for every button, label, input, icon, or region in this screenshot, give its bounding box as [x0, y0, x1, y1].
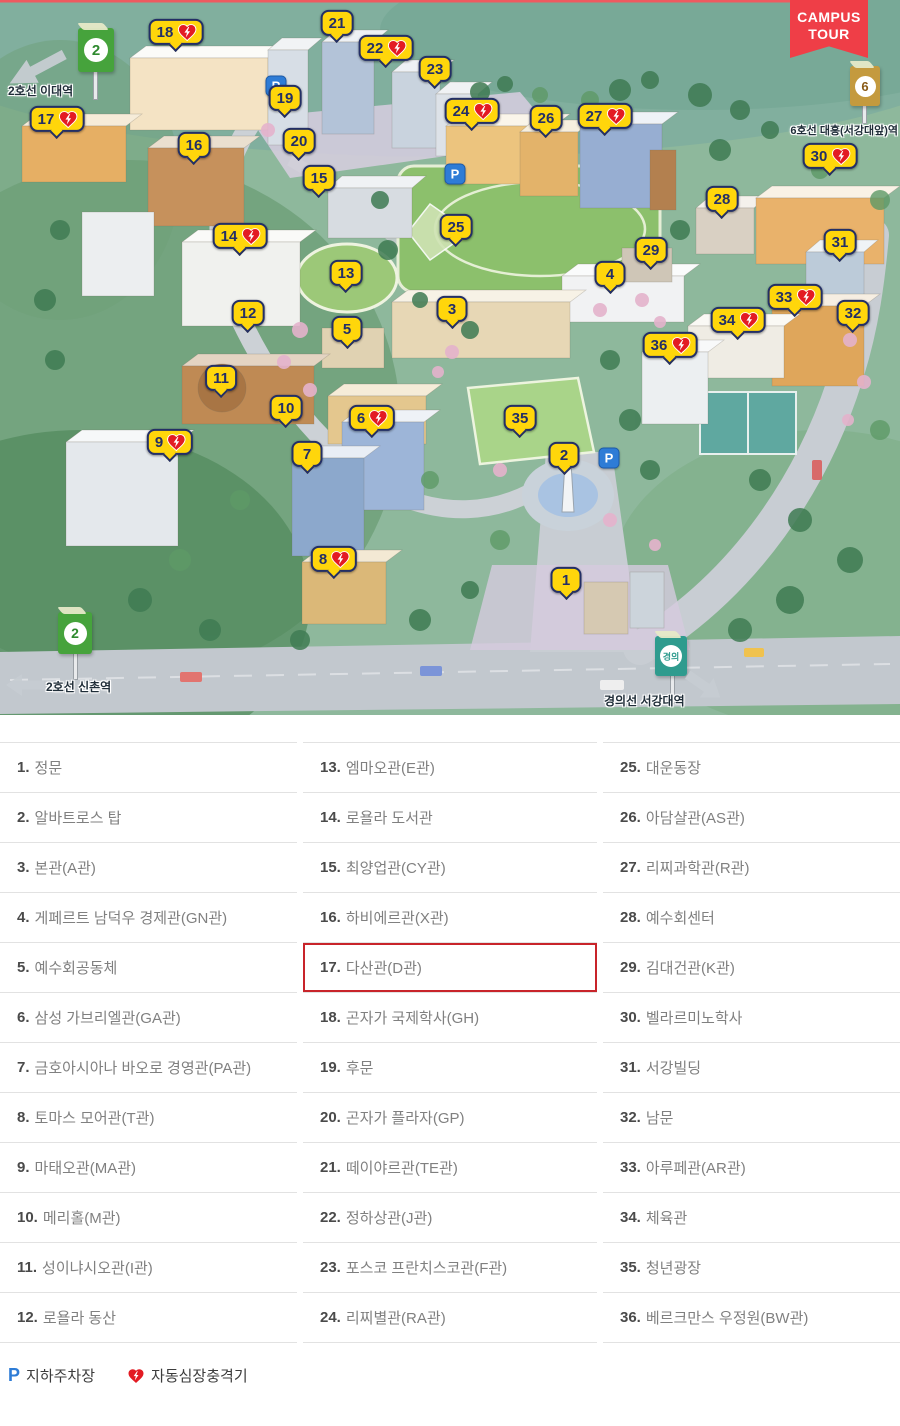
marker-number: 33: [776, 289, 793, 304]
legend-item-label: 최양업관(CY관): [346, 857, 446, 878]
building-marker[interactable]: 30: [803, 143, 858, 169]
building-marker[interactable]: 12: [232, 300, 265, 326]
legend-item-number: 16.: [320, 909, 341, 926]
legend-item[interactable]: 27. 리찌과학관(R관): [603, 843, 900, 893]
legend-item-number: 26.: [620, 809, 641, 826]
legend-item-number: 35.: [620, 1259, 641, 1276]
legend-item[interactable]: 13. 엠마오관(E관): [303, 743, 597, 793]
legend-column: 25. 대운동장 26. 아담샬관(AS관) 27. 리찌과학관(R관) 28.…: [603, 742, 900, 1343]
aed-heart-icon: [795, 286, 816, 307]
legend-item[interactable]: 23. 포스코 프란치스코관(F관): [303, 1243, 597, 1293]
legend-item[interactable]: 29. 김대건관(K관): [603, 943, 900, 993]
legend-item-number: 8.: [17, 1109, 30, 1126]
legend-item[interactable]: 26. 아담샬관(AS관): [603, 793, 900, 843]
building-marker[interactable]: 9: [147, 429, 193, 455]
gyeongui-badge: 경의: [660, 645, 682, 667]
line2-sign: 2: [78, 28, 114, 72]
legend-item-number: 31.: [620, 1059, 641, 1076]
marker-number: 20: [291, 133, 308, 148]
parking-icon: P: [605, 451, 614, 466]
marker-number: 4: [606, 266, 614, 281]
building-marker[interactable]: 10: [270, 395, 303, 421]
station-line6-daeheung: 6 6호선 대흥(서강대앞)역: [780, 60, 900, 140]
legend-item[interactable]: 5. 예수회공동체: [0, 943, 297, 993]
legend-item[interactable]: 33. 아루페관(AR관): [603, 1143, 900, 1193]
building-marker[interactable]: 27: [578, 103, 633, 129]
legend-item[interactable]: 24. 리찌별관(RA관): [303, 1293, 597, 1343]
marker-number: 25: [448, 219, 465, 234]
building-marker[interactable]: 19: [269, 85, 302, 111]
legend-item-label: 토마스 모어관(T관): [35, 1107, 155, 1128]
legend-item[interactable]: 22. 정하상관(J관): [303, 1193, 597, 1243]
legend-item-number: 20.: [320, 1109, 341, 1126]
building-marker[interactable]: 13: [330, 260, 363, 286]
aed-key: 자동심장충격기: [127, 1365, 248, 1386]
legend-item-number: 13.: [320, 759, 341, 776]
legend-item-number: 10.: [17, 1209, 38, 1226]
legend-item[interactable]: 20. 곤자가 플라자(GP): [303, 1093, 597, 1143]
building-marker[interactable]: 14: [213, 223, 268, 249]
building-marker[interactable]: 31: [824, 229, 857, 255]
aed-heart-icon: [176, 21, 197, 42]
marker-number: 36: [651, 337, 668, 352]
parking-marker[interactable]: P: [599, 448, 620, 469]
legend-item[interactable]: 18. 곤자가 국제학사(GH): [303, 993, 597, 1043]
aed-heart-icon: [738, 309, 759, 330]
campus-map: CAMPUS TOUR 2 2호선 이대역 2 2호선 신촌역 6: [0, 0, 900, 715]
legend-item-label: 김대건관(K관): [646, 957, 735, 978]
legend-item-label: 남문: [646, 1107, 674, 1128]
legend-item-label: 게페르트 남덕우 경제관(GN관): [35, 907, 228, 928]
legend-item-number: 28.: [620, 909, 641, 926]
legend-item[interactable]: 7. 금호아시아나 바오로 경영관(PA관): [0, 1043, 297, 1093]
building-marker[interactable]: 15: [303, 165, 336, 191]
legend-item[interactable]: 14. 로욜라 도서관: [303, 793, 597, 843]
building-marker[interactable]: 6: [349, 405, 395, 431]
gyeongui-sign: 경의: [655, 636, 687, 676]
marker-number: 23: [427, 61, 444, 76]
parking-key: P 지하주차장: [8, 1365, 95, 1386]
legend-item-number: 9.: [17, 1159, 30, 1176]
legend-item-number: 34.: [620, 1209, 641, 1226]
marker-number: 9: [155, 434, 163, 449]
legend-item-label: 마태오관(MA관): [35, 1157, 137, 1178]
legend-item-number: 27.: [620, 859, 641, 876]
building-marker[interactable]: 33: [768, 284, 823, 310]
legend-item-label: 포스코 프란치스코관(F관): [346, 1257, 507, 1278]
aed-key-label: 자동심장충격기: [151, 1365, 248, 1386]
map-key: P 지하주차장 자동심장충격기: [0, 1343, 900, 1386]
legend-item-number: 19.: [320, 1059, 341, 1076]
legend-item-label: 다산관(D관): [346, 957, 422, 978]
marker-number: 18: [157, 24, 174, 39]
building-marker[interactable]: 29: [635, 237, 668, 263]
marker-number: 15: [311, 170, 328, 185]
campus-tour-line1: CAMPUS: [797, 9, 861, 26]
marker-number: 17: [38, 111, 55, 126]
marker-number: 10: [278, 400, 295, 415]
legend-item-number: 6.: [17, 1009, 30, 1026]
marker-number: 31: [832, 234, 849, 249]
legend-item[interactable]: 36. 베르크만스 우정원(BW관): [603, 1293, 900, 1343]
building-marker[interactable]: 5: [332, 316, 363, 342]
legend-item-number: 24.: [320, 1309, 341, 1326]
aed-heart-icon: [670, 334, 691, 355]
station-label: 경의선 서강대역: [604, 692, 685, 709]
legend-item-label: 메리홀(M관): [43, 1207, 121, 1228]
legend-item-number: 11.: [17, 1259, 37, 1276]
legend-item[interactable]: 11. 성이냐시오관(I관): [0, 1243, 297, 1293]
legend-item-label: 떼이야르관(TE관): [346, 1157, 458, 1178]
parking-marker[interactable]: P: [445, 164, 466, 185]
parking-icon: P: [8, 1365, 20, 1386]
aed-heart-icon: [472, 100, 493, 121]
building-marker[interactable]: 4: [595, 261, 626, 287]
building-marker[interactable]: 2: [549, 442, 580, 468]
marker-number: 2: [560, 447, 568, 462]
legend-item-label: 곤자가 플라자(GP): [346, 1107, 465, 1128]
marker-number: 28: [714, 191, 731, 206]
aed-heart-icon: [386, 37, 407, 58]
legend-item-label: 곤자가 국제학사(GH): [346, 1007, 479, 1028]
marker-number: 22: [367, 40, 384, 55]
legend-item-number: 36.: [620, 1309, 641, 1326]
legend-item-number: 2.: [17, 809, 30, 826]
legend-column: 1. 정문 2. 알바트로스 탑 3. 본관(A관) 4. 게페르트 남덕우 경…: [0, 742, 297, 1343]
building-marker[interactable]: 20: [283, 128, 316, 154]
marker-number: 19: [277, 90, 294, 105]
legend-item[interactable]: 31. 서강빌딩: [603, 1043, 900, 1093]
building-marker[interactable]: 21: [321, 10, 354, 36]
legend-item-label: 후문: [346, 1057, 374, 1078]
building-marker[interactable]: 35: [504, 405, 537, 431]
legend-item[interactable]: 8. 토마스 모어관(T관): [0, 1093, 297, 1143]
legend-item[interactable]: 25. 대운동장: [603, 743, 900, 793]
building-marker[interactable]: 16: [178, 132, 211, 158]
legend-item[interactable]: 16. 하비에르관(X관): [303, 893, 597, 943]
legend-item-number: 25.: [620, 759, 641, 776]
aed-heart-icon: [368, 407, 389, 428]
building-marker[interactable]: 25: [440, 214, 473, 240]
campus-tour-line2: TOUR: [808, 26, 849, 43]
marker-number: 1: [562, 572, 570, 587]
building-marker[interactable]: 34: [711, 307, 766, 333]
legend-item-label: 본관(A관): [35, 857, 96, 878]
legend-item[interactable]: 30. 벨라르미노학사: [603, 993, 900, 1043]
legend-item[interactable]: 6. 삼성 가브리엘관(GA관): [0, 993, 297, 1043]
line6-sign: 6: [850, 66, 880, 106]
marker-number: 3: [448, 301, 456, 316]
aed-heart-icon: [240, 225, 261, 246]
legend-item-label: 베르크만스 우정원(BW관): [646, 1307, 809, 1328]
legend-item[interactable]: 3. 본관(A관): [0, 843, 297, 893]
legend-item-number: 21.: [320, 1159, 341, 1176]
marker-number: 24: [453, 103, 470, 118]
building-marker[interactable]: 23: [419, 56, 452, 82]
marker-number: 27: [586, 108, 603, 123]
marker-number: 29: [643, 242, 660, 257]
legend-item-number: 12.: [17, 1309, 38, 1326]
legend-item[interactable]: 17. 다산관(D관): [303, 943, 597, 993]
marker-number: 13: [338, 265, 355, 280]
line2-badge: 2: [64, 622, 87, 645]
building-marker[interactable]: 8: [311, 546, 357, 572]
legend-item[interactable]: 28. 예수회센터: [603, 893, 900, 943]
building-marker[interactable]: 1: [551, 567, 582, 593]
arrow-down-right-icon: [681, 665, 728, 708]
aed-heart-icon: [830, 145, 851, 166]
legend-item-label: 서강빌딩: [646, 1057, 701, 1078]
legend-item[interactable]: 21. 떼이야르관(TE관): [303, 1143, 597, 1193]
campus-map-page: CAMPUS TOUR 2 2호선 이대역 2 2호선 신촌역 6: [0, 0, 900, 1426]
line6-badge: 6: [855, 76, 876, 97]
legend-item-label: 알바트로스 탑: [35, 807, 122, 828]
marker-number: 35: [512, 410, 529, 425]
legend-item-label: 로욜라 도서관: [346, 807, 433, 828]
marker-number: 26: [538, 110, 555, 125]
aed-heart-icon: [605, 105, 626, 126]
marker-number: 8: [319, 551, 327, 566]
legend-item-label: 엠마오관(E관): [346, 757, 435, 778]
legend-item-number: 33.: [620, 1159, 641, 1176]
marker-number: 6: [357, 410, 365, 425]
building-marker[interactable]: 17: [30, 106, 85, 132]
marker-number: 12: [240, 305, 257, 320]
legend-item[interactable]: 34. 체육관: [603, 1193, 900, 1243]
building-marker[interactable]: 24: [445, 98, 500, 124]
aed-heart-icon: [57, 108, 78, 129]
legend-item-label: 삼성 가브리엘관(GA관): [35, 1007, 181, 1028]
legend-item-number: 32.: [620, 1109, 641, 1126]
marker-number: 34: [719, 312, 736, 327]
legend-item-number: 4.: [17, 909, 30, 926]
aed-heart-icon: [127, 1367, 145, 1385]
legend-item[interactable]: 1. 정문: [0, 743, 297, 793]
legend-item-label: 체육관: [646, 1207, 687, 1228]
marker-number: 11: [213, 370, 229, 385]
station-line2-sinchon: 2 2호선 신촌역: [0, 606, 180, 706]
building-marker[interactable]: 26: [530, 105, 563, 131]
marker-number: 7: [303, 446, 311, 461]
marker-number: 16: [186, 137, 203, 152]
legend-item-number: 1.: [17, 759, 30, 776]
aed-heart-icon: [166, 431, 187, 452]
parking-key-label: 지하주차장: [26, 1365, 95, 1386]
legend-item-number: 3.: [17, 859, 30, 876]
legend-item-label: 대운동장: [646, 757, 701, 778]
parking-icon: P: [451, 167, 460, 182]
legend-item[interactable]: 12. 로욜라 동산: [0, 1293, 297, 1343]
station-label: 6호선 대흥(서강대앞)역: [790, 122, 898, 138]
legend-item-label: 청년광장: [646, 1257, 701, 1278]
legend-item-number: 29.: [620, 959, 641, 976]
legend-item-number: 17.: [320, 959, 341, 976]
marker-number: 14: [221, 228, 238, 243]
legend-item-label: 성이냐시오관(I관): [42, 1257, 153, 1278]
legend-item-number: 15.: [320, 859, 341, 876]
legend-item[interactable]: 9. 마태오관(MA관): [0, 1143, 297, 1193]
line2-sign: 2: [58, 612, 92, 654]
legend-item-number: 22.: [320, 1209, 341, 1226]
legend-item[interactable]: 35. 청년광장: [603, 1243, 900, 1293]
legend-item-label: 예수회공동체: [35, 957, 118, 978]
legend-item-label: 하비에르관(X관): [346, 907, 449, 928]
legend-item-label: 정하상관(J관): [346, 1207, 433, 1228]
legend-item-number: 7.: [17, 1059, 30, 1076]
legend-item[interactable]: 15. 최양업관(CY관): [303, 843, 597, 893]
legend-item-label: 정문: [35, 757, 63, 778]
legend-item-number: 30.: [620, 1009, 641, 1026]
station-gyeongui-seogang: 경의 경의선 서강대역: [596, 630, 756, 715]
marker-number: 5: [343, 321, 351, 336]
legend-item-label: 리찌별관(RA관): [346, 1307, 446, 1328]
legend-item[interactable]: 32. 남문: [603, 1093, 900, 1143]
legend-item[interactable]: 2. 알바트로스 탑: [0, 793, 297, 843]
legend-item-label: 아루페관(AR관): [646, 1157, 746, 1178]
building-marker[interactable]: 28: [706, 186, 739, 212]
station-label: 2호선 신촌역: [46, 678, 111, 695]
marker-number: 32: [845, 305, 862, 320]
building-marker[interactable]: 3: [437, 296, 468, 322]
arrow-left-icon: [6, 674, 44, 696]
legend-item[interactable]: 4. 게페르트 남덕우 경제관(GN관): [0, 893, 297, 943]
legend-item-number: 23.: [320, 1259, 341, 1276]
marker-number: 21: [329, 15, 346, 30]
legend-item-label: 예수회센터: [646, 907, 715, 928]
aed-heart-icon: [330, 548, 351, 569]
building-marker[interactable]: 22: [359, 35, 414, 61]
building-marker[interactable]: 18: [149, 19, 204, 45]
legend-item-label: 로욜라 동산: [43, 1307, 116, 1328]
legend-item[interactable]: 19. 후문: [303, 1043, 597, 1093]
legend-column: 13. 엠마오관(E관) 14. 로욜라 도서관 15. 최양업관(CY관) 1…: [303, 742, 597, 1343]
legend-item[interactable]: 10. 메리홀(M관): [0, 1193, 297, 1243]
building-legend: 1. 정문 2. 알바트로스 탑 3. 본관(A관) 4. 게페르트 남덕우 경…: [0, 742, 900, 1343]
building-marker[interactable]: 7: [292, 441, 323, 467]
legend-item-label: 벨라르미노학사: [646, 1007, 743, 1028]
building-marker[interactable]: 36: [643, 332, 698, 358]
legend-item-label: 금호아시아나 바오로 경영관(PA관): [35, 1057, 252, 1078]
legend-item-number: 5.: [17, 959, 30, 976]
legend-item-number: 18.: [320, 1009, 341, 1026]
station-label: 2호선 이대역: [8, 82, 73, 99]
legend-item-label: 리찌과학관(R관): [646, 857, 750, 878]
marker-number: 30: [811, 148, 828, 163]
legend-item-label: 아담샬관(AS관): [646, 807, 745, 828]
line2-badge: 2: [84, 38, 108, 62]
legend-item-number: 14.: [320, 809, 341, 826]
building-marker[interactable]: 32: [837, 300, 870, 326]
building-marker[interactable]: 11: [205, 365, 237, 391]
